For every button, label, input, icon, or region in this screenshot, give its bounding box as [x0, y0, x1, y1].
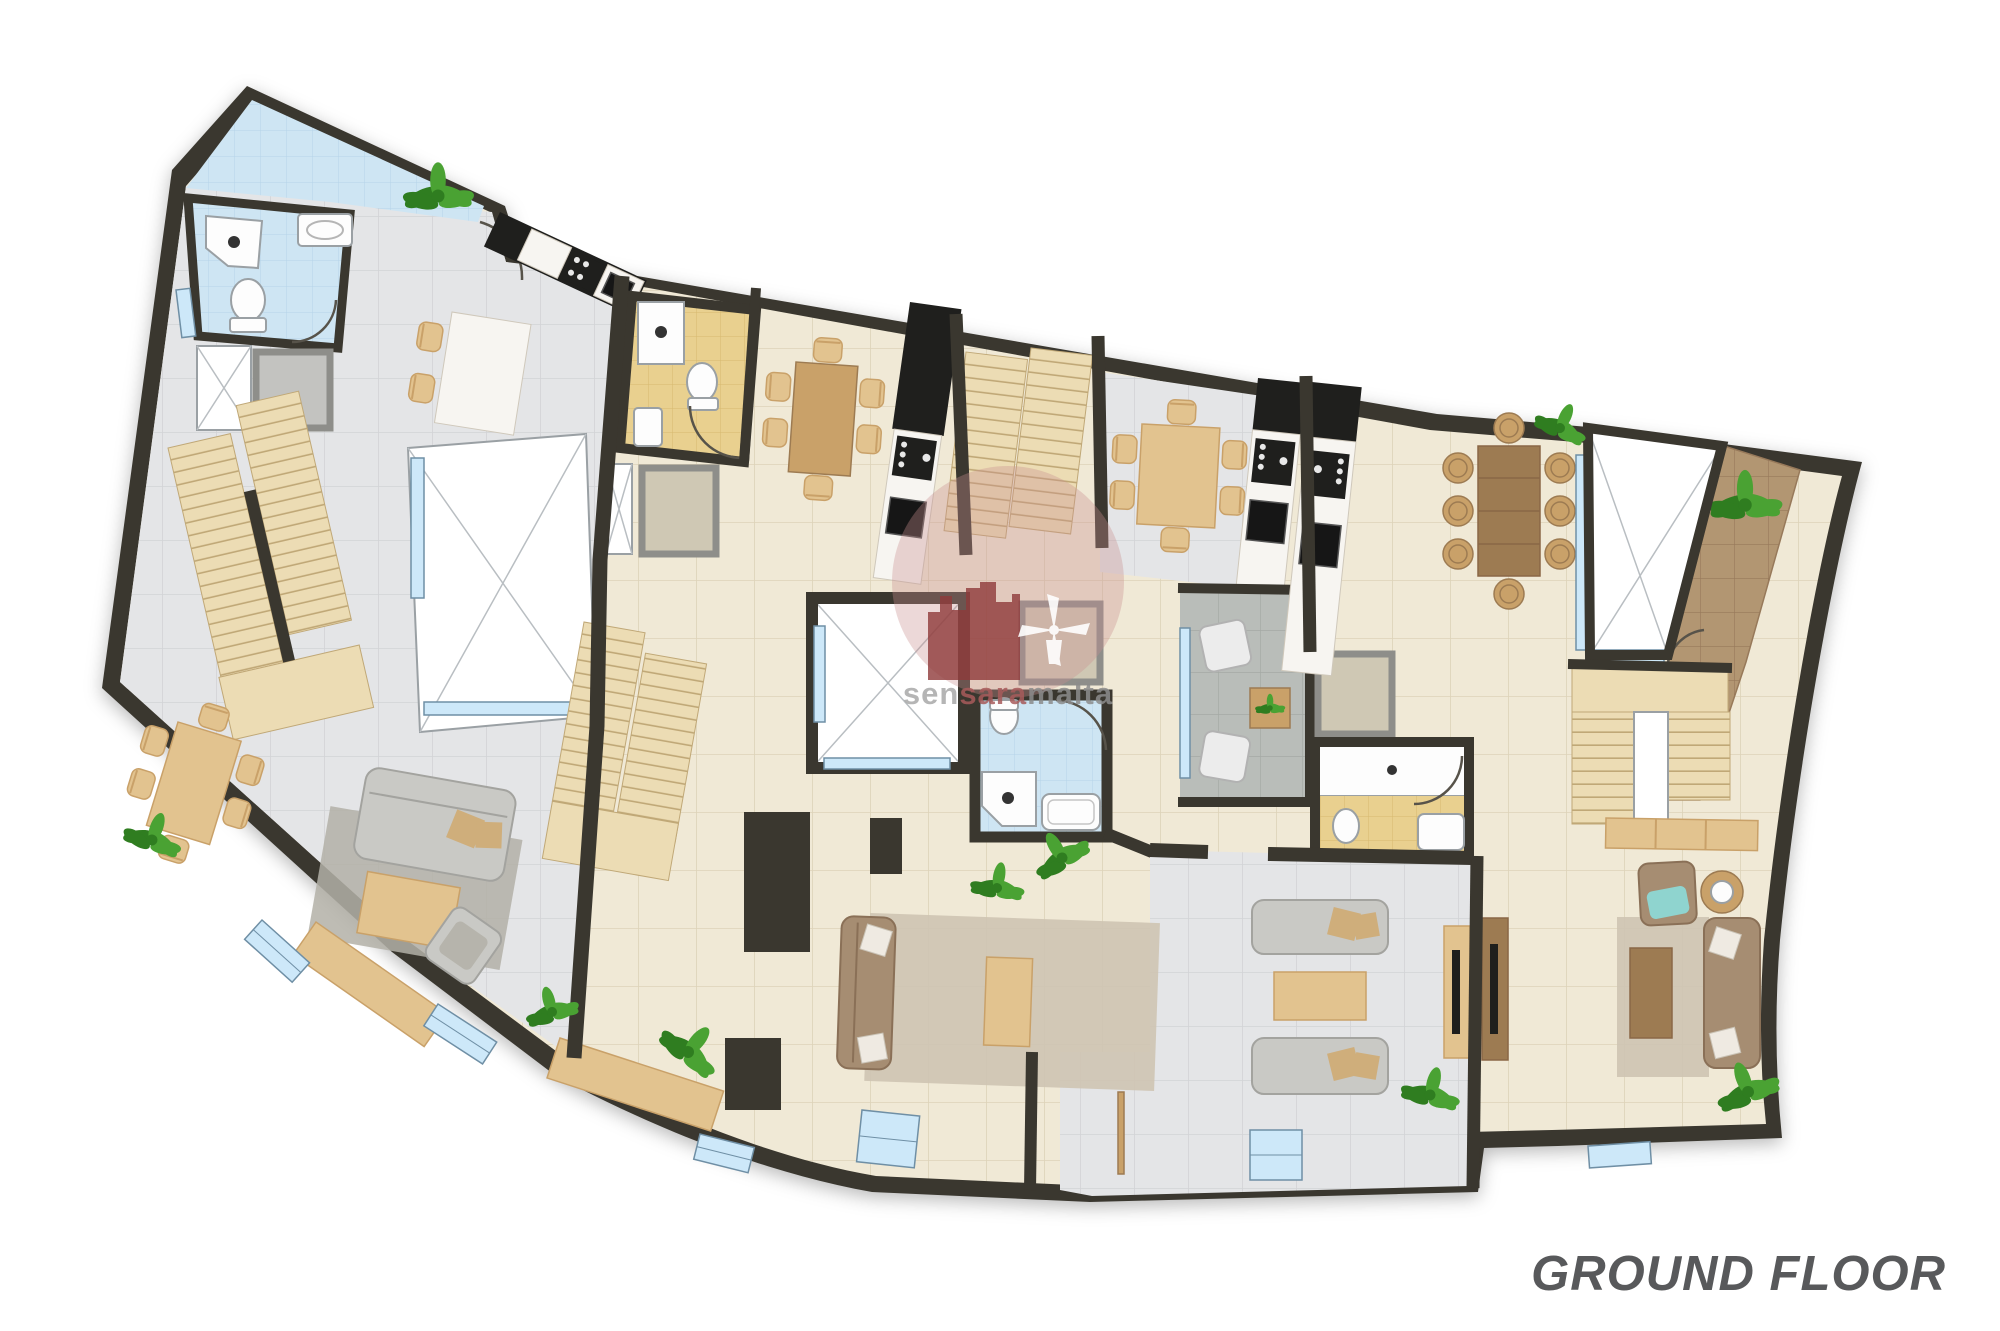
coffee-table	[1630, 948, 1672, 1038]
sink-faucet-icon	[1387, 765, 1397, 775]
toilet-tank-icon	[230, 318, 266, 332]
toilet-icon	[687, 363, 717, 401]
floor-title: GROUND FLOOR	[1531, 1247, 1946, 1301]
courtyard-window	[814, 626, 825, 722]
courtyard-window	[424, 702, 574, 715]
terrace-chair	[1198, 730, 1251, 783]
elevator	[642, 468, 716, 554]
living-area	[836, 912, 1160, 1091]
tv-icon	[1452, 950, 1460, 1034]
door-leaf	[1118, 1092, 1124, 1174]
shower-drain-icon	[1002, 792, 1014, 804]
armchair	[1638, 861, 1697, 926]
shower-drain-icon	[655, 326, 667, 338]
terrace-window	[1180, 628, 1190, 778]
toilet-tank-icon	[688, 398, 718, 410]
terrace-chair	[1198, 618, 1253, 673]
courtyard-window	[824, 758, 950, 769]
sideboard	[1605, 818, 1758, 851]
floor-plan-drawing: sensaramalta GROUND FLOOR	[0, 0, 2000, 1331]
shower-drain-icon	[228, 236, 240, 248]
tv-icon	[1490, 944, 1498, 1034]
sink-icon	[634, 408, 662, 446]
floor-plan-page: sensaramalta GROUND FLOOR	[0, 0, 2000, 1331]
courtyard-window	[411, 458, 424, 598]
toilet-icon	[1333, 809, 1359, 843]
bathtub-icon	[1418, 814, 1464, 850]
watermark-text: sensaramalta	[903, 676, 1113, 711]
coffee-table	[984, 957, 1033, 1047]
coffee-table	[1274, 972, 1366, 1020]
toilet-icon	[231, 279, 265, 321]
